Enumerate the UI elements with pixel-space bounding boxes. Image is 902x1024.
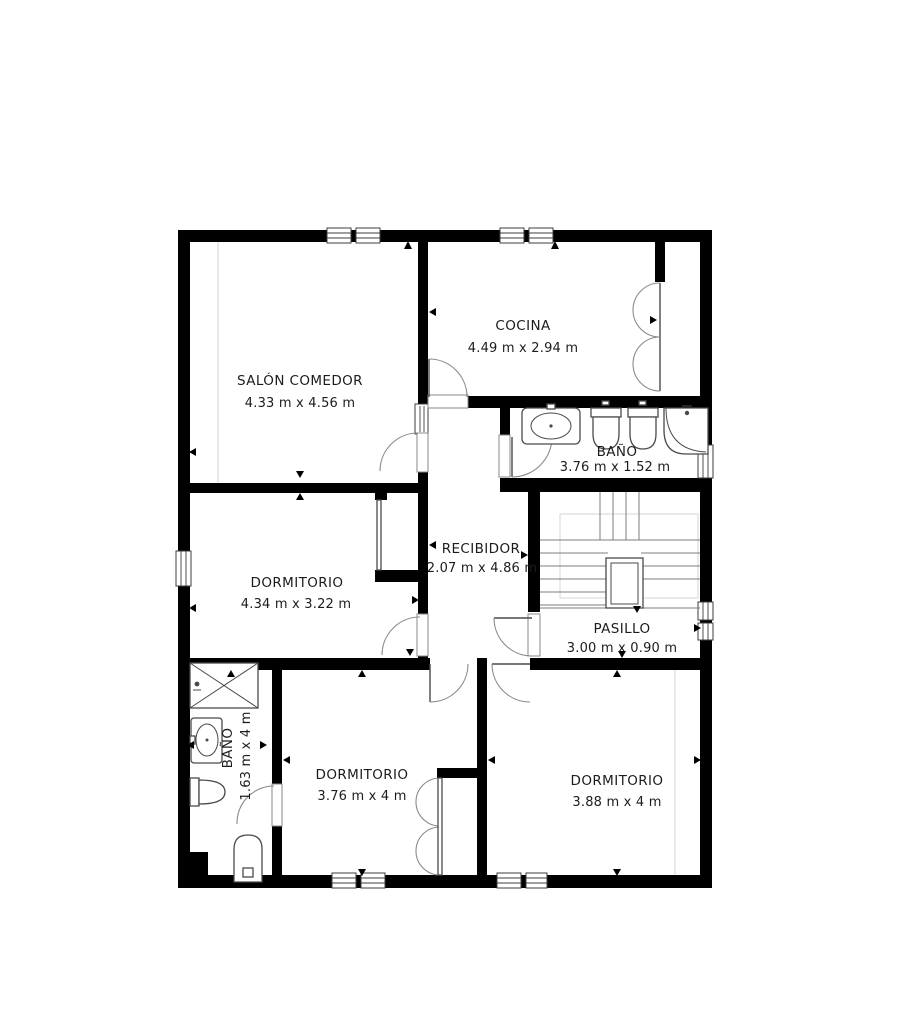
window xyxy=(698,623,713,640)
room-label-recibidor: RECIBIDOR 2.07 m x 4.86 m xyxy=(427,541,537,576)
window xyxy=(332,873,356,888)
sink-icon xyxy=(522,404,580,444)
window xyxy=(361,873,385,888)
window xyxy=(327,228,351,243)
room-name: SALÓN COMEDOR xyxy=(237,371,363,389)
wardrobe-icon xyxy=(438,778,442,875)
room-label-pasillo: PASILLO 3.00 m x 0.90 m xyxy=(567,621,677,656)
door-dormitorio-2 xyxy=(430,664,468,702)
room-name: BAÑO xyxy=(597,443,638,460)
door-dormitorio-1 xyxy=(382,614,428,656)
window xyxy=(356,228,380,243)
interior-glass-pane xyxy=(415,404,428,434)
window xyxy=(529,228,553,243)
shower-icon xyxy=(664,406,708,454)
room-name: DORMITORIO xyxy=(251,575,344,591)
door-pasillo xyxy=(494,614,540,656)
staircase xyxy=(540,492,700,608)
toilet-icon xyxy=(591,401,621,449)
room-dims: 2.07 m x 4.86 m xyxy=(427,561,537,576)
room-label-dormitorio-1: DORMITORIO 4.34 m x 3.22 m xyxy=(241,575,351,612)
room-name: COCINA xyxy=(495,318,551,334)
shower-icon xyxy=(190,663,258,708)
bidet-icon xyxy=(628,401,658,449)
room-label-dormitorio-2: DORMITORIO 3.76 m x 4 m xyxy=(316,767,409,804)
room-dims: 3.76 m x 4 m xyxy=(317,789,406,804)
toilet-icon xyxy=(190,778,225,806)
door-cocina xyxy=(428,359,468,408)
stair-newel xyxy=(606,558,643,608)
floor-plan: SALÓN COMEDOR 4.33 m x 4.56 m COCINA 4.4… xyxy=(0,0,902,1024)
room-name: PASILLO xyxy=(593,621,650,637)
window xyxy=(698,602,713,620)
room-label-cocina: COCINA 4.49 m x 2.94 m xyxy=(468,318,578,356)
door-dormitorio-3 xyxy=(492,664,530,702)
floor-plan-canvas: SALÓN COMEDOR 4.33 m x 4.56 m COCINA 4.4… xyxy=(0,0,902,1024)
window xyxy=(526,873,547,888)
column xyxy=(178,852,208,888)
room-name: DORMITORIO xyxy=(571,773,664,789)
window xyxy=(500,228,524,243)
room-dims: 4.49 m x 2.94 m xyxy=(468,341,578,356)
room-dims: 3.00 m x 0.90 m xyxy=(567,641,677,656)
room-name: RECIBIDOR xyxy=(442,541,521,557)
room-dims: 4.34 m x 3.22 m xyxy=(241,597,351,612)
window xyxy=(497,873,521,888)
bifold-doors-armario xyxy=(416,778,440,875)
door-salon xyxy=(380,433,428,472)
room-label-bano-superior: BAÑO 3.76 m x 1.52 m xyxy=(560,443,670,475)
room-label-salon: SALÓN COMEDOR 4.33 m x 4.56 m xyxy=(237,371,363,411)
bifold-doors-despensa xyxy=(633,283,660,391)
room-dims: 3.76 m x 1.52 m xyxy=(560,460,670,475)
room-dims: 3.88 m x 4 m xyxy=(572,795,661,810)
wardrobe-icon xyxy=(377,500,381,570)
room-dims: 4.33 m x 4.56 m xyxy=(245,396,355,411)
window xyxy=(176,551,191,586)
bidet-icon xyxy=(234,835,262,882)
closets xyxy=(377,500,442,875)
room-label-dormitorio-3: DORMITORIO 3.88 m x 4 m xyxy=(571,773,664,810)
room-dims: 1.63 m x 4 m xyxy=(239,711,254,800)
room-name: BAÑO xyxy=(219,728,236,769)
sink-icon xyxy=(190,718,222,763)
room-name: DORMITORIO xyxy=(316,767,409,783)
